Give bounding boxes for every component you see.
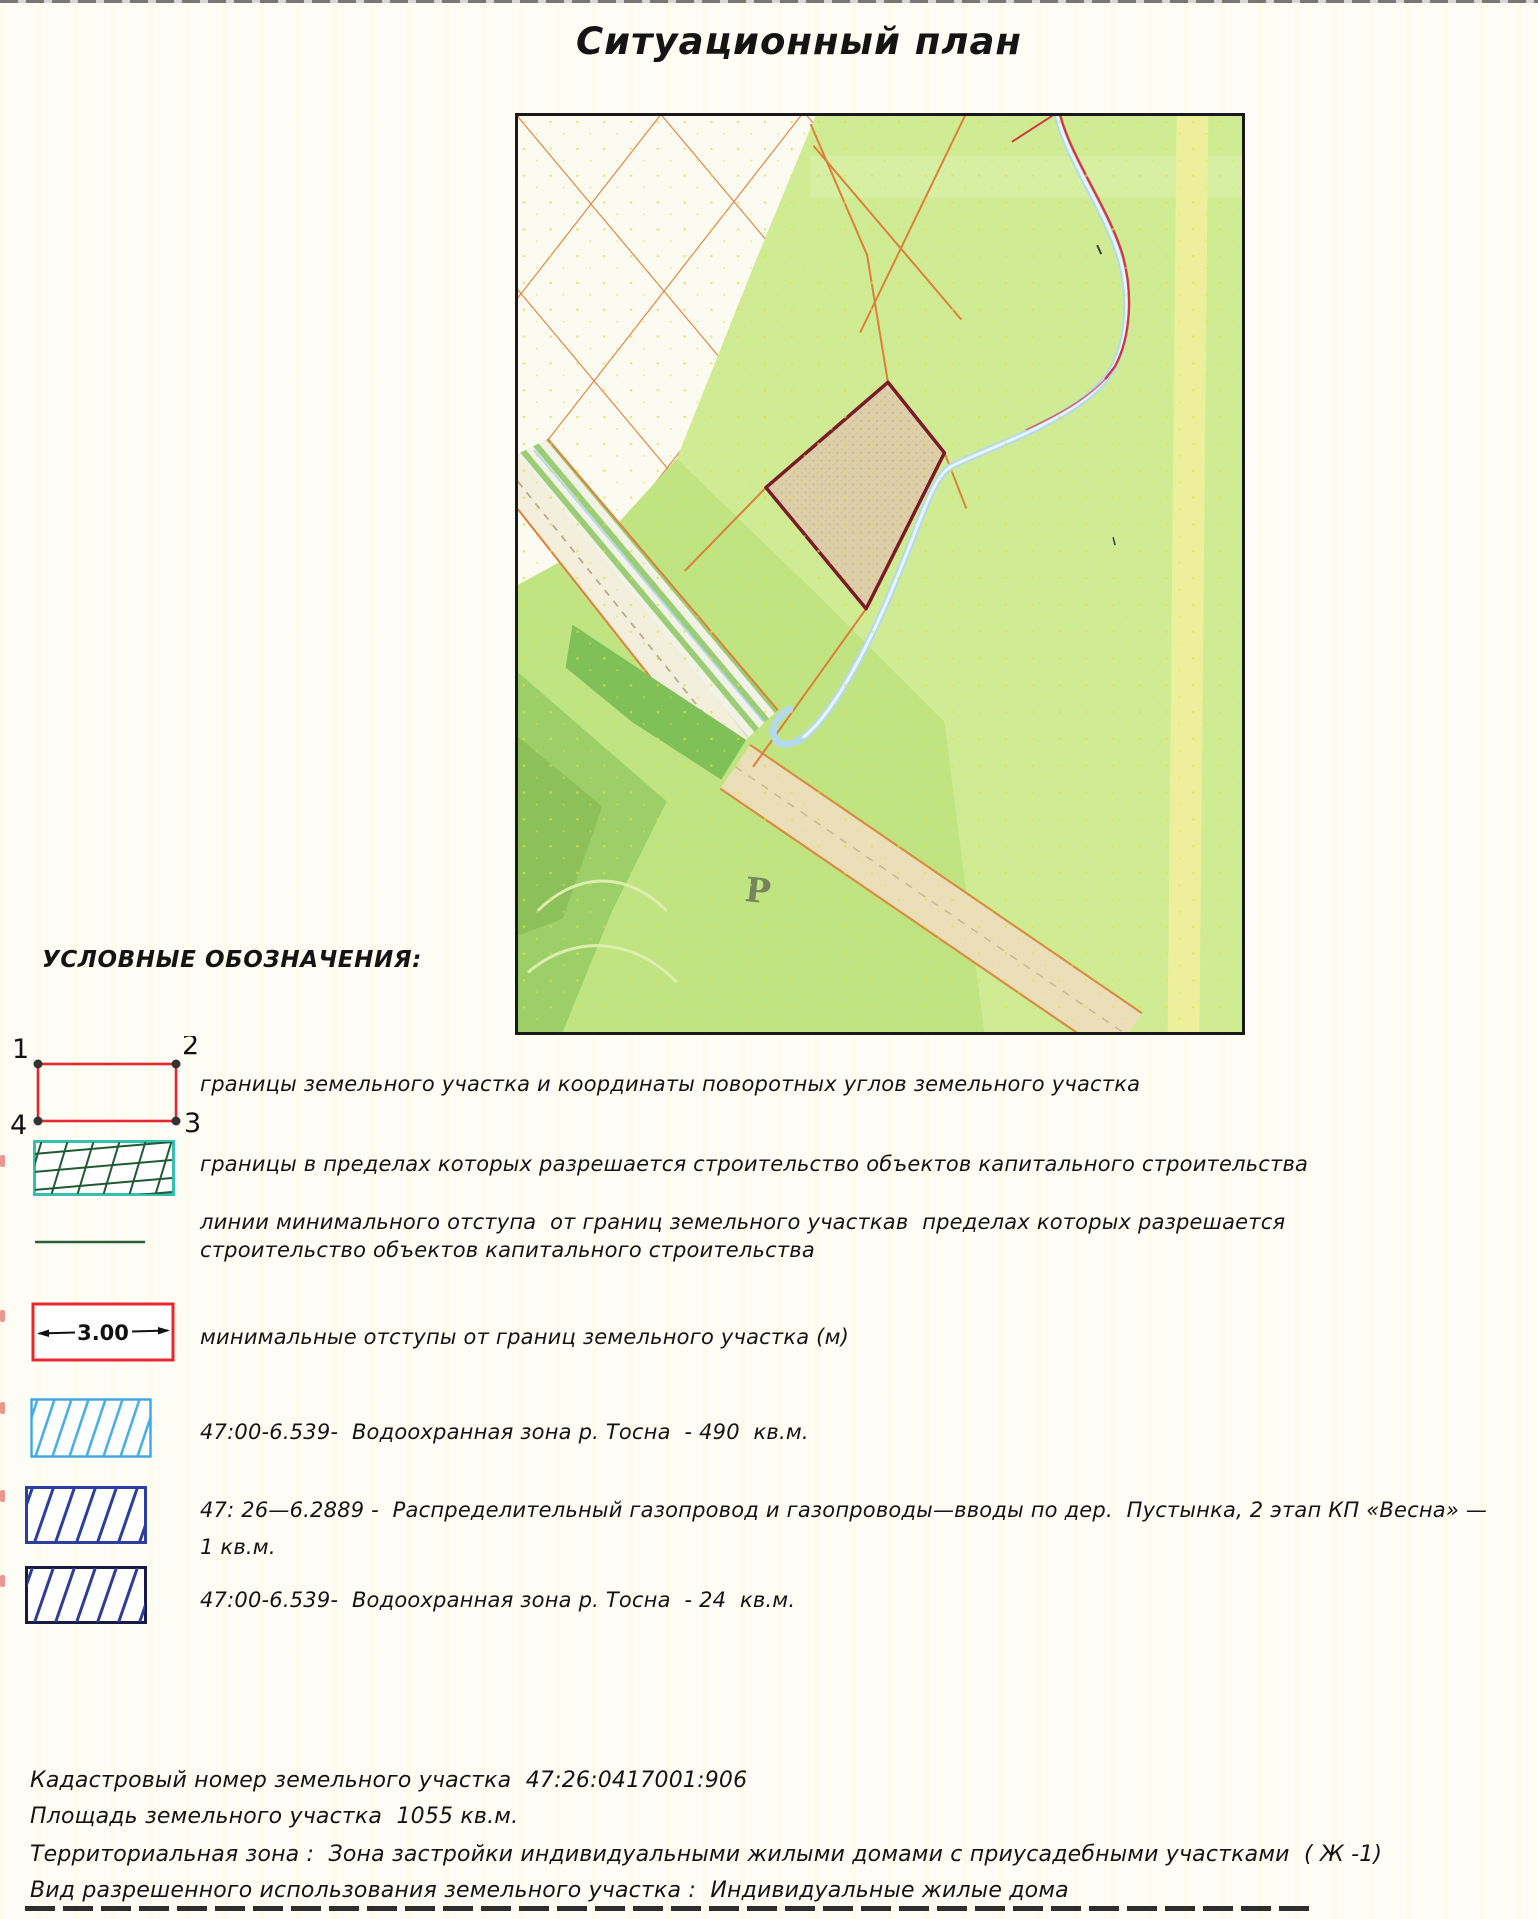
legend-label-min-offset-line-1: линии минимального отступа от границ зем… (200, 1210, 1285, 1234)
area-line: Площадь земельного участка 1055 кв.м. (30, 1804, 518, 1829)
scan-artifact (0, 1490, 5, 1502)
water-zone-490-swatch (30, 1398, 152, 1458)
corner-number-2: 2 (182, 1036, 199, 1061)
permitted-use-line: Вид разрешенного использования земельног… (30, 1878, 1069, 1903)
scan-artifact (0, 1575, 5, 1587)
cadastral-number-line: Кадастровый номер земельного участка 47:… (30, 1768, 747, 1793)
situational-plan-page: Ситуационный план (0, 0, 1538, 1919)
legend-label-parcel-boundary: границы земельного участка и координаты … (200, 1072, 1140, 1096)
scan-artifact (0, 1402, 5, 1414)
building-zone-swatch (33, 1140, 175, 1196)
situation-map-drawing: Р (518, 116, 1242, 1032)
scan-artifact (0, 1155, 5, 1167)
scan-bottom-edge (25, 1906, 1317, 1911)
legend-label-building-zone: границы в пределах которых разрешается с… (200, 1152, 1308, 1176)
parcel-boundary-swatch: 1 2 3 4 (8, 1036, 203, 1140)
legend-label-min-offset-value: минимальные отступы от границ земельного… (200, 1325, 849, 1349)
legend-header: УСЛОВНЫЕ ОБОЗНАЧЕНИЯ: (42, 947, 422, 973)
min-offset-line-swatch (33, 1238, 153, 1246)
offset-value: 3.00 (77, 1321, 129, 1345)
scan-top-edge (0, 0, 1538, 3)
gas-pipeline-swatch (25, 1486, 147, 1544)
situation-map: Р (515, 113, 1245, 1035)
speckle-texture (518, 116, 1242, 1032)
legend-label-water-zone-490: 47:00-6.539- Водоохранная зона р. Тосна … (200, 1420, 809, 1444)
page-title: Ситуационный план (30, 20, 1538, 63)
scan-artifact (0, 1310, 5, 1322)
legend-label-gas-pipeline-1: 47: 26—6.2889 - Распределительный газопр… (200, 1498, 1487, 1522)
corner-number-4: 4 (10, 1110, 27, 1140)
legend-label-min-offset-line-2: строительство объектов капитального стро… (200, 1238, 815, 1262)
corner-number-3: 3 (184, 1108, 201, 1139)
water-zone-24-swatch (25, 1566, 147, 1624)
legend-label-gas-pipeline-2: 1 кв.м. (200, 1535, 276, 1559)
min-offset-value-swatch: 3.00 (31, 1302, 177, 1364)
legend-label-water-zone-24: 47:00-6.539- Водоохранная зона р. Тосна … (200, 1588, 795, 1612)
territorial-zone-line: Территориальная зона : Зона застройки ин… (30, 1842, 1382, 1867)
corner-number-1: 1 (12, 1036, 29, 1065)
